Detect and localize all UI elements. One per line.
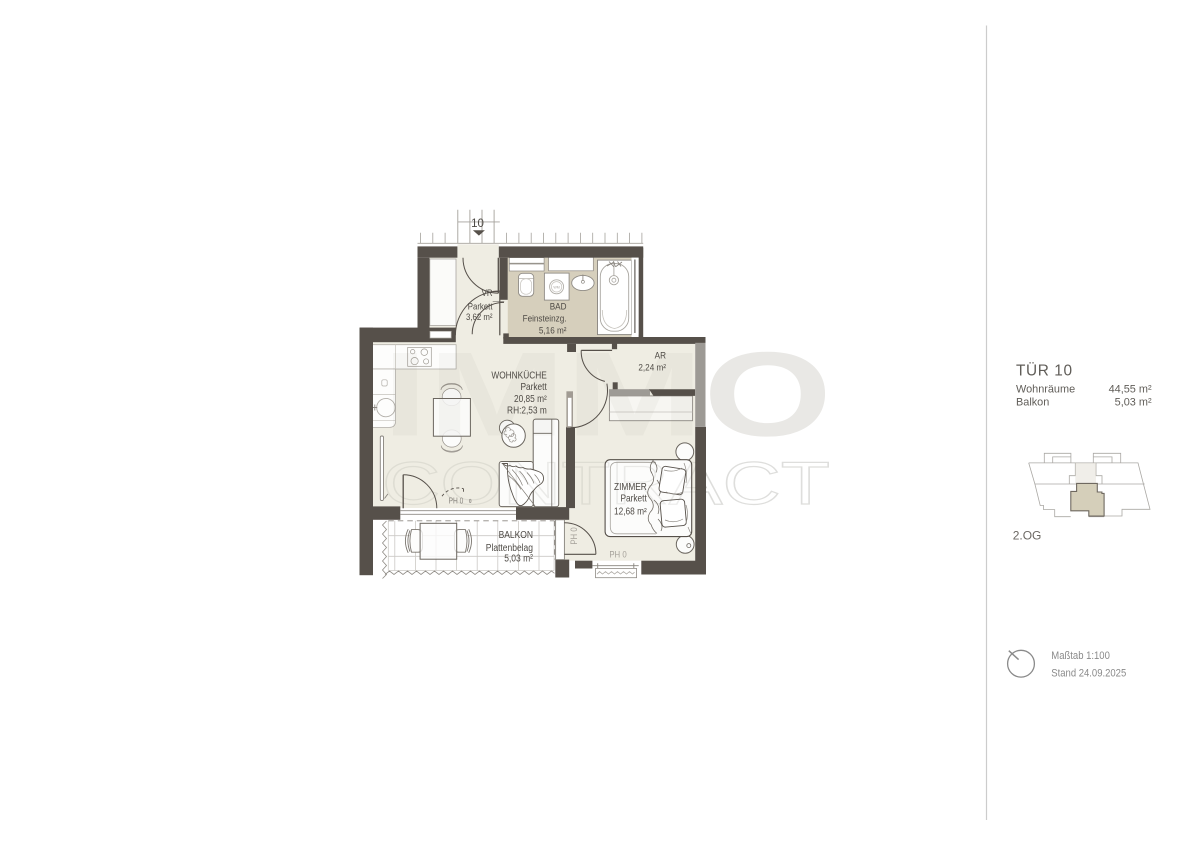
svg-text:RH:2,53 m: RH:2,53 m: [507, 405, 547, 416]
svg-text:Parkett: Parkett: [520, 381, 547, 392]
svg-text:10: 10: [471, 218, 484, 230]
svg-text:Wohnräume: Wohnräume: [1016, 384, 1075, 396]
svg-text:44,55 m²: 44,55 m²: [1109, 384, 1152, 396]
svg-text:PH 0: PH 0: [449, 496, 464, 506]
svg-text:20,85 m²: 20,85 m²: [514, 393, 547, 404]
svg-text:12,68 m²: 12,68 m²: [614, 506, 647, 517]
svg-text:ZIMMER: ZIMMER: [614, 481, 647, 492]
svg-text:Feinsteinzg.: Feinsteinzg.: [523, 313, 567, 324]
svg-text:Plattenbelag: Plattenbelag: [486, 542, 533, 553]
svg-text:Stand 24.09.2025: Stand 24.09.2025: [1051, 668, 1126, 680]
svg-text:2.OG: 2.OG: [1013, 528, 1042, 542]
svg-text:TÜR 10: TÜR 10: [1016, 362, 1073, 380]
svg-text:5,16 m²: 5,16 m²: [539, 325, 567, 336]
svg-text:Parkett: Parkett: [620, 493, 647, 504]
svg-text:Parkett: Parkett: [468, 301, 493, 312]
svg-text:PH 0: PH 0: [568, 527, 579, 545]
svg-text:2,24 m²: 2,24 m²: [638, 362, 666, 373]
svg-text:Balkon: Balkon: [1016, 396, 1049, 408]
svg-text:5,03 m²: 5,03 m²: [504, 553, 533, 564]
svg-text:VR: VR: [482, 288, 493, 299]
svg-text:WM: WM: [553, 285, 559, 289]
svg-text:WOHNKÜCHE: WOHNKÜCHE: [491, 370, 546, 381]
svg-text:3,62 m²: 3,62 m²: [466, 311, 493, 322]
svg-text:BAD: BAD: [550, 301, 567, 312]
svg-text:Maßtab 1:100: Maßtab 1:100: [1051, 650, 1110, 662]
svg-text:PH 0: PH 0: [609, 549, 627, 560]
svg-text:BALKON: BALKON: [499, 529, 533, 540]
svg-text:AR: AR: [655, 350, 667, 361]
svg-text:5,03 m²: 5,03 m²: [1115, 396, 1152, 408]
